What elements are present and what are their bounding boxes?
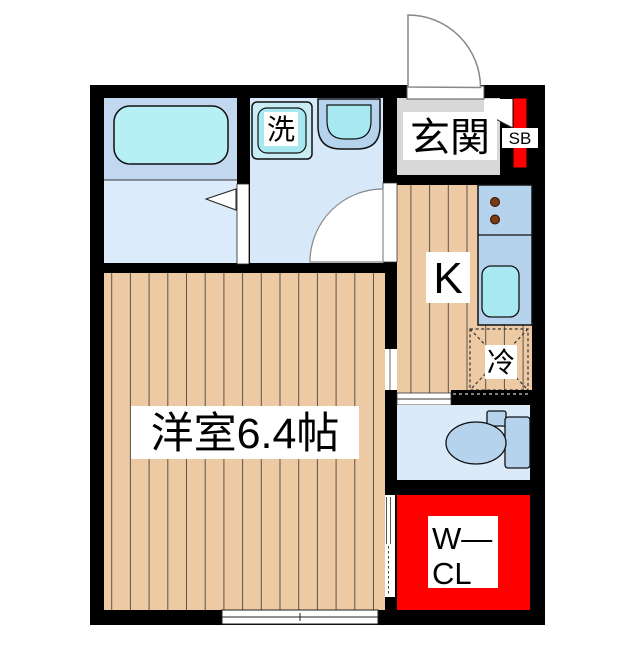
washroom-door bbox=[383, 183, 397, 262]
fridge-label: 冷 bbox=[487, 347, 515, 378]
stove-burner bbox=[491, 198, 500, 207]
bathroom-door bbox=[237, 184, 249, 264]
kitchen-label: K bbox=[433, 254, 462, 303]
floor-plan-page: 玄関 SB 洗 K 冷 洋室6.4帖 W— CL bbox=[0, 0, 640, 640]
toilet-tank bbox=[505, 417, 530, 468]
entrance-door-swing bbox=[408, 15, 481, 88]
window bbox=[222, 610, 378, 624]
main-room-label: 洋室6.4帖 bbox=[151, 410, 340, 458]
kitchen-sink bbox=[482, 266, 519, 317]
bathtub bbox=[114, 106, 228, 164]
closet-label-line2: CL bbox=[432, 556, 472, 591]
closet-label-line1: W— bbox=[432, 521, 492, 556]
entrance-label: 玄関 bbox=[410, 116, 490, 160]
stove-burner bbox=[491, 215, 500, 224]
bathroom-floor bbox=[104, 180, 237, 263]
washer-label: 洗 bbox=[267, 114, 295, 145]
washbasin-bowl bbox=[327, 105, 371, 139]
toilet-bowl bbox=[446, 422, 506, 464]
shoe-box-label: SB bbox=[509, 129, 532, 148]
wall-under-fridge bbox=[451, 390, 532, 405]
floor-plan: 玄関 SB 洗 K 冷 洋室6.4帖 W— CL bbox=[0, 0, 640, 640]
